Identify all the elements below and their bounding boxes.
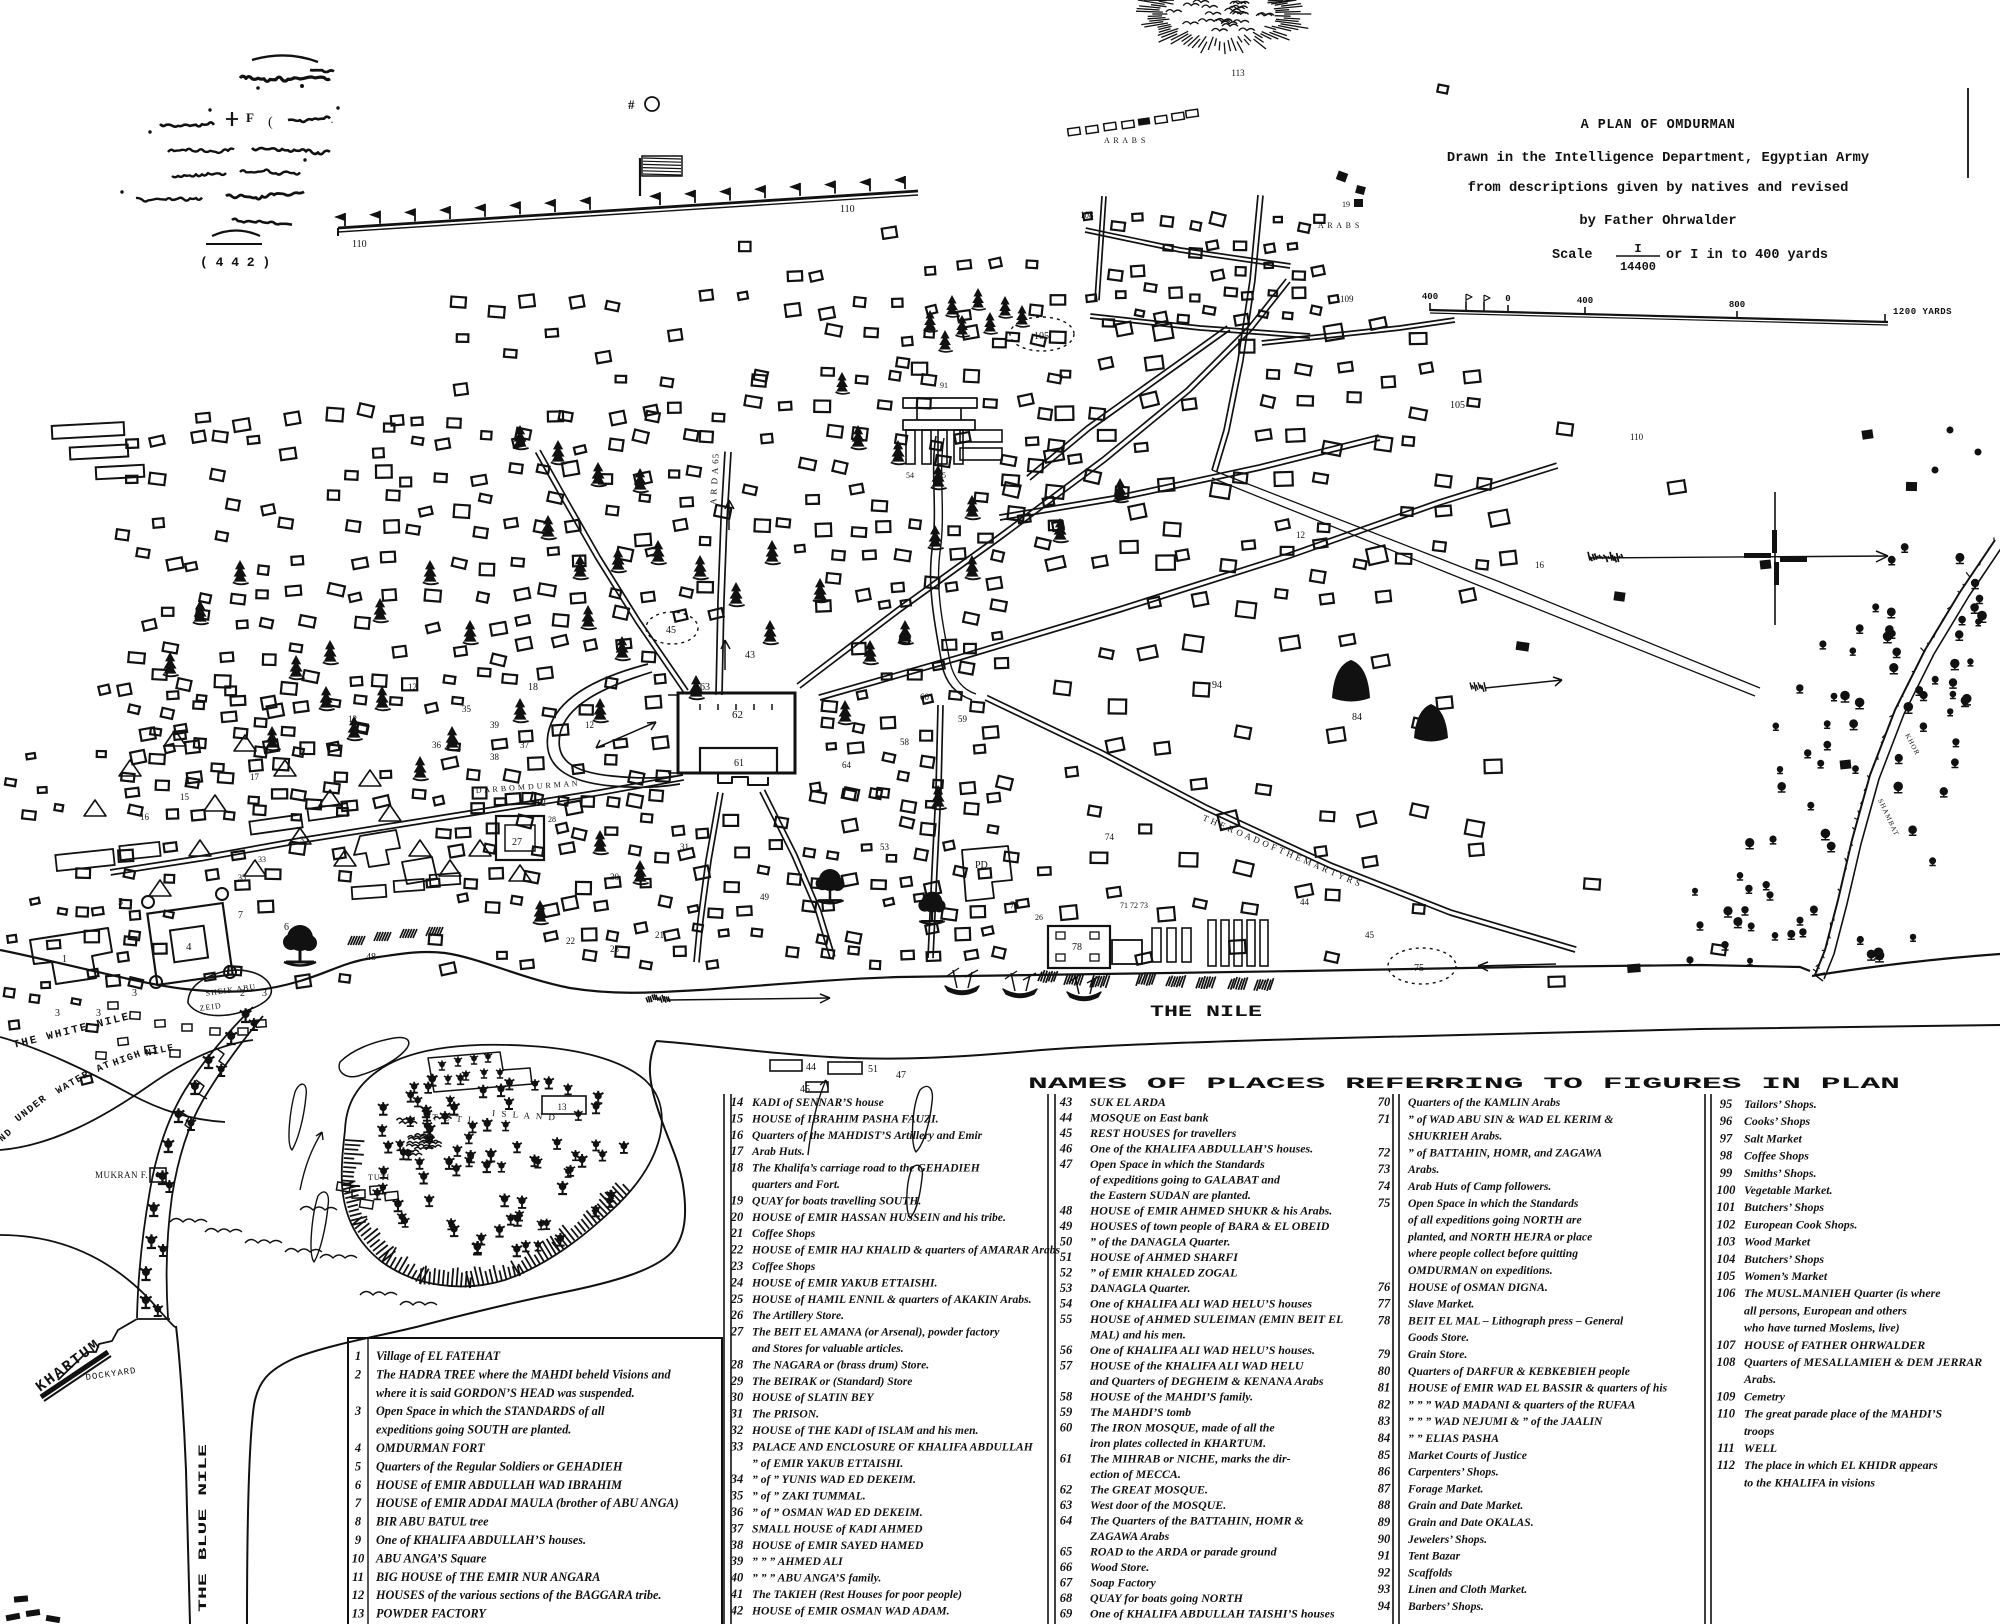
svg-text:quarters and Fort.: quarters and Fort. <box>752 1178 840 1191</box>
svg-text:5: 5 <box>118 897 123 908</box>
svg-text:troops: troops <box>1744 1424 1775 1438</box>
svg-text:45: 45 <box>800 1084 810 1095</box>
svg-text:Coffee Shops: Coffee Shops <box>1744 1149 1809 1163</box>
svg-text:Linen and Cloth Market.: Linen and Cloth Market. <box>1407 1583 1527 1596</box>
svg-text:78: 78 <box>1378 1313 1391 1327</box>
svg-text:19: 19 <box>1342 200 1350 209</box>
svg-text:113: 113 <box>1231 68 1245 78</box>
svg-text:ABU ANGA’S Square: ABU ANGA’S Square <box>375 1551 487 1565</box>
svg-text:37: 37 <box>730 1521 744 1535</box>
svg-text:Slave Market.: Slave Market. <box>1408 1298 1474 1311</box>
svg-text:REST HOUSES for travellers: REST HOUSES for travellers <box>1089 1126 1237 1140</box>
svg-text:to the KHALIFA in visions: to the KHALIFA in visions <box>1744 1475 1875 1489</box>
svg-text:6: 6 <box>284 922 289 933</box>
svg-text:16: 16 <box>1535 560 1545 570</box>
svg-text:51: 51 <box>868 1064 878 1075</box>
svg-text:21: 21 <box>730 1226 744 1240</box>
svg-text:” ” ” WAD MADANI & quart: ” ” ” WAD MADANI & quarters of the RUFAA <box>1408 1398 1636 1411</box>
svg-text:Wood Store.: Wood Store. <box>1090 1560 1149 1574</box>
svg-text:48: 48 <box>1059 1204 1073 1218</box>
svg-text:all persons, European and othe: all persons, European and others <box>1744 1303 1907 1317</box>
svg-text:Arab Huts.: Arab Huts. <box>751 1145 805 1158</box>
svg-text:by Father Ohrwalder: by Father Ohrwalder <box>1579 213 1736 229</box>
svg-text:35: 35 <box>238 873 246 882</box>
svg-text:26: 26 <box>730 1308 744 1322</box>
svg-text:43: 43 <box>1059 1095 1073 1109</box>
svg-text:expeditions going SOUTH are pl: expeditions going SOUTH are planted. <box>376 1423 571 1437</box>
svg-text:65: 65 <box>1060 1545 1073 1559</box>
svg-text:60: 60 <box>1060 1421 1073 1435</box>
svg-text:70: 70 <box>1378 1095 1391 1109</box>
svg-text:Open Space in which the STANDA: Open Space in which the STANDARDS of all <box>376 1404 605 1418</box>
svg-text:7: 7 <box>355 1496 362 1510</box>
svg-text:HOUSE of EMIR AHMED SHUKR & hi: HOUSE of EMIR AHMED SHUKR & his Arabs. <box>1089 1204 1332 1218</box>
svg-text:the Eastern SUDAN are planted.: the Eastern SUDAN are planted. <box>1090 1188 1251 1202</box>
svg-text:12: 12 <box>408 682 417 692</box>
svg-text:50: 50 <box>1060 1235 1073 1249</box>
svg-text:3: 3 <box>132 988 137 999</box>
svg-text:MAL) and his men.: MAL) and his men. <box>1089 1328 1186 1342</box>
svg-text:·: · <box>330 115 334 129</box>
svg-text:63: 63 <box>700 682 710 693</box>
svg-text:” of EMIR YAKUB ETTAISHI.: ” of EMIR YAKUB ETTAISHI. <box>752 1457 903 1470</box>
svg-text:5: 5 <box>355 1459 361 1473</box>
svg-text:Grain and Date OKALAS.: Grain and Date OKALAS. <box>1408 1516 1534 1529</box>
svg-text:108: 108 <box>1717 1355 1737 1369</box>
svg-text:” of BATTAHIN, HOMR, and Z: ” of BATTAHIN, HOMR, and ZAGAWA <box>1408 1146 1603 1159</box>
svg-text:89: 89 <box>1378 1515 1391 1529</box>
svg-text:57: 57 <box>1060 1359 1073 1373</box>
svg-text:10: 10 <box>352 1551 365 1565</box>
svg-text:One of KHALIFA ABDULLAH’S hous: One of KHALIFA ABDULLAH’S houses. <box>376 1533 586 1547</box>
svg-text:35: 35 <box>730 1489 744 1503</box>
svg-text:53: 53 <box>1060 1281 1073 1295</box>
svg-text:Village of EL FATEHAT: Village of EL FATEHAT <box>376 1349 501 1363</box>
svg-text:or I in to 400 yards: or I in to 400 yards <box>1666 248 1828 263</box>
svg-text:39: 39 <box>490 720 500 730</box>
svg-text:” ” ” WAD NEJUMI & ” o: ” ” ” WAD NEJUMI & ” of the JAALIN <box>1408 1415 1603 1428</box>
svg-text:The IRON MOSQUE, made of all t: The IRON MOSQUE, made of all the <box>1090 1421 1275 1435</box>
svg-text:50: 50 <box>820 872 830 882</box>
svg-text:Cemetry: Cemetry <box>1744 1389 1786 1403</box>
svg-text:Arab Huts of Camp followers.: Arab Huts of Camp followers. <box>1407 1180 1551 1193</box>
svg-text:Open Space in which the Standa: Open Space in which the Standards <box>1090 1157 1265 1171</box>
svg-text:37: 37 <box>520 740 530 750</box>
svg-text:32: 32 <box>730 1423 744 1437</box>
svg-text:PD: PD <box>975 860 988 871</box>
svg-text:112: 112 <box>1717 1458 1735 1472</box>
svg-text:44: 44 <box>806 1062 816 1073</box>
svg-text:98: 98 <box>1720 1149 1733 1163</box>
svg-text:46: 46 <box>1059 1142 1073 1156</box>
svg-text:The MIHRAB or NICHE, marks the: The MIHRAB or NICHE, marks the dir- <box>1090 1452 1291 1466</box>
svg-text:60: 60 <box>920 692 930 702</box>
svg-text:BEIT EL MAL – Lithograph press: BEIT EL MAL – Lithograph press – General <box>1407 1314 1624 1327</box>
svg-text:Quarters of DARFUR & KEBKEBIEH: Quarters of DARFUR & KEBKEBIEH people <box>1408 1365 1630 1378</box>
svg-text:Scaffolds: Scaffolds <box>1408 1566 1453 1579</box>
svg-text:DANAGLA Quarter.: DANAGLA Quarter. <box>1089 1281 1190 1295</box>
svg-text:Arabs.: Arabs. <box>1743 1372 1776 1386</box>
svg-text:West door of the MOSQUE.: West door of the MOSQUE. <box>1090 1498 1226 1512</box>
svg-text:72: 72 <box>1378 1145 1391 1159</box>
svg-text:SHUKRIEH Arabs.: SHUKRIEH Arabs. <box>1408 1130 1502 1143</box>
svg-text:43: 43 <box>745 650 755 661</box>
svg-text:84: 84 <box>1378 1431 1391 1445</box>
svg-text:Tailors’ Shops.: Tailors’ Shops. <box>1744 1097 1817 1111</box>
svg-text:15: 15 <box>731 1111 744 1125</box>
svg-text:12: 12 <box>348 714 357 724</box>
svg-text:0: 0 <box>1505 294 1510 304</box>
svg-text:76: 76 <box>1010 900 1020 910</box>
svg-text:110: 110 <box>1630 432 1644 442</box>
svg-text:41: 41 <box>730 1587 744 1601</box>
svg-text:Open Space in which the Standa: Open Space in which the Standards <box>1408 1197 1579 1210</box>
svg-text:The Quarters of the BATTAHIN,: The Quarters of the BATTAHIN, HOMR & <box>1090 1514 1304 1528</box>
svg-text:30: 30 <box>610 872 620 882</box>
svg-text:Quarters of the KAMLIN Arabs: Quarters of the KAMLIN Arabs <box>1408 1096 1561 1109</box>
svg-text:96: 96 <box>1720 1114 1733 1128</box>
svg-text:52: 52 <box>1060 1266 1073 1280</box>
svg-text:90: 90 <box>1378 1532 1391 1546</box>
svg-text:HOUSE of SLATIN BEY: HOUSE of SLATIN BEY <box>751 1391 874 1404</box>
svg-text:84: 84 <box>1352 712 1362 723</box>
svg-text:14: 14 <box>731 1095 744 1109</box>
svg-text:where people collect before qu: where people collect before quitting <box>1408 1247 1578 1260</box>
svg-text:45: 45 <box>666 625 676 636</box>
svg-text:94: 94 <box>1378 1599 1391 1613</box>
svg-text:27: 27 <box>512 837 522 848</box>
svg-text:49: 49 <box>1059 1219 1073 1233</box>
svg-text:Smiths’ Shops.: Smiths’ Shops. <box>1744 1166 1817 1180</box>
svg-text:KADI of SENNAR’S house: KADI of SENNAR’S house <box>751 1096 884 1109</box>
svg-text:A PLAN OF OMDURMAN: A PLAN OF OMDURMAN <box>1581 118 1736 133</box>
svg-text:where it is said GORDON’S HEAD: where it is said GORDON’S HEAD was suspe… <box>376 1386 635 1400</box>
svg-text:105: 105 <box>1034 331 1049 342</box>
svg-text:33: 33 <box>730 1439 744 1453</box>
svg-text:12: 12 <box>352 1588 365 1602</box>
svg-text:111: 111 <box>1717 1441 1734 1455</box>
svg-text:” of EMIR KHALED ZOGAL: ” of EMIR KHALED ZOGAL <box>1090 1266 1237 1280</box>
svg-text:The BEIT EL AMANA (or Arsenal): The BEIT EL AMANA (or Arsenal), powder f… <box>752 1326 1000 1339</box>
svg-text:77: 77 <box>1378 1297 1391 1311</box>
svg-text:61: 61 <box>1060 1452 1073 1466</box>
svg-text:” ” ” AHMED ALI: ” ” ” AHMED ALI <box>752 1555 843 1568</box>
svg-text:79: 79 <box>1378 1347 1391 1361</box>
svg-text:Grain Store.: Grain Store. <box>1408 1348 1467 1361</box>
svg-text:102: 102 <box>1717 1217 1736 1231</box>
svg-text:and Quarters of DEGHEIM & KENA: and Quarters of DEGHEIM & KENANA Arabs <box>1090 1374 1324 1388</box>
svg-text:Quarters of MESALLAMIEH & DEM: Quarters of MESALLAMIEH & DEM JERRAR <box>1744 1355 1982 1369</box>
svg-text:108: 108 <box>1080 210 1094 220</box>
svg-text:The Khalifa’s carriage road to: The Khalifa’s carriage road to the GEHAD… <box>752 1162 981 1175</box>
svg-text:HOUSE of EMIR YAKUB ETTAISHI.: HOUSE of EMIR YAKUB ETTAISHI. <box>751 1276 937 1289</box>
svg-text:18: 18 <box>731 1161 744 1175</box>
svg-text:400: 400 <box>1422 292 1438 302</box>
svg-text:Forage Market.: Forage Market. <box>1407 1482 1483 1495</box>
svg-text:34: 34 <box>730 1472 744 1486</box>
svg-text:Wood Market: Wood Market <box>1744 1235 1811 1249</box>
svg-text:73: 73 <box>1378 1162 1391 1176</box>
svg-text:Quarters of the Regular Soldie: Quarters of the Regular Soldiers or GEHA… <box>376 1459 623 1473</box>
svg-text:1: 1 <box>355 1349 361 1363</box>
svg-text:OMDURMAN on expeditions.: OMDURMAN on expeditions. <box>1408 1264 1553 1277</box>
svg-text:91: 91 <box>940 381 948 390</box>
svg-text:59: 59 <box>958 714 968 724</box>
svg-text:3: 3 <box>354 1404 361 1418</box>
svg-text:3: 3 <box>262 988 267 999</box>
svg-text:of all expeditions going NORTH: of all expeditions going NORTH are <box>1408 1214 1582 1227</box>
svg-text:105: 105 <box>1450 400 1465 411</box>
svg-text:4: 4 <box>354 1441 361 1455</box>
svg-text:A R A B S: A R A B S <box>1104 136 1146 145</box>
svg-text:23: 23 <box>730 1259 744 1273</box>
svg-text:93: 93 <box>1378 1582 1391 1596</box>
svg-text:82: 82 <box>1378 1397 1391 1411</box>
svg-text:HOUSE of THE KADI of ISLAM and: HOUSE of THE KADI of ISLAM and his men. <box>751 1424 978 1437</box>
svg-text:54: 54 <box>906 471 914 480</box>
svg-text:HOUSE of AHMED SHARFI: HOUSE of AHMED SHARFI <box>1089 1250 1238 1264</box>
svg-text:and Stores for valuable articl: and Stores for valuable articles. <box>752 1342 904 1355</box>
svg-text:OMDURMAN FORT: OMDURMAN FORT <box>376 1441 485 1455</box>
svg-text:64: 64 <box>1060 1514 1073 1528</box>
svg-text:28: 28 <box>548 815 556 824</box>
svg-text:62: 62 <box>1060 1483 1073 1497</box>
svg-text:Vegetable Market.: Vegetable Market. <box>1744 1183 1833 1197</box>
svg-text:11: 11 <box>352 1570 364 1584</box>
svg-text:48: 48 <box>366 952 376 963</box>
svg-text:17: 17 <box>731 1144 744 1158</box>
svg-text:54: 54 <box>1060 1297 1073 1311</box>
svg-text:17: 17 <box>250 772 260 782</box>
svg-text:BIR ABU BATUL tree: BIR ABU BATUL tree <box>375 1515 489 1529</box>
svg-text:Butchers’ Shops: Butchers’ Shops <box>1743 1252 1824 1266</box>
svg-text:55: 55 <box>1060 1312 1073 1326</box>
svg-text:QUAY for boats going NORTH: QUAY for boats going NORTH <box>1090 1591 1244 1605</box>
svg-text:58: 58 <box>900 737 910 747</box>
svg-text:13: 13 <box>352 1607 365 1621</box>
svg-text:7: 7 <box>238 910 243 921</box>
svg-text:71 72 73: 71 72 73 <box>1120 901 1148 910</box>
svg-text:78: 78 <box>1072 942 1082 953</box>
svg-text:12: 12 <box>585 720 594 730</box>
svg-text:2: 2 <box>240 988 245 999</box>
svg-text:HOUSE of the MAHDI’S family.: HOUSE of the MAHDI’S family. <box>1089 1390 1253 1404</box>
svg-text:One of KHALIFA ABDULLAH TAISHI: One of KHALIFA ABDULLAH TAISHI’S houses <box>1090 1607 1335 1621</box>
svg-text:103: 103 <box>1717 1235 1736 1249</box>
svg-text:SUK EL ARDA: SUK EL ARDA <box>1090 1095 1166 1109</box>
svg-text:107: 107 <box>1717 1338 1737 1352</box>
svg-text:” ” ” ABU ANGA’: ” ” ” ABU ANGA’S family. <box>752 1572 881 1585</box>
svg-text:12: 12 <box>1296 530 1305 540</box>
svg-text:36: 36 <box>730 1505 744 1519</box>
svg-text:13: 13 <box>558 1102 568 1112</box>
svg-text:38: 38 <box>490 752 500 762</box>
svg-text:400: 400 <box>1577 296 1593 306</box>
svg-text:91: 91 <box>1378 1549 1391 1563</box>
svg-text:74: 74 <box>1105 832 1115 842</box>
svg-text:The Artillery Store.: The Artillery Store. <box>752 1309 844 1322</box>
svg-text:75: 75 <box>1378 1196 1391 1210</box>
svg-text:95: 95 <box>1720 1097 1733 1111</box>
svg-text:105: 105 <box>1717 1269 1736 1283</box>
svg-text:SMALL HOUSE of KADI AHMED: SMALL HOUSE of KADI AHMED <box>752 1522 923 1535</box>
svg-text:(: ( <box>268 115 273 130</box>
svg-text:MUKRAN F.: MUKRAN F. <box>95 1170 148 1180</box>
svg-text:80: 80 <box>1378 1364 1391 1378</box>
svg-text:69: 69 <box>1060 1607 1073 1621</box>
svg-text:” ” ELIAS PASHA: ” ” ELIAS PASHA <box>1408 1432 1499 1445</box>
svg-text:Coffee Shops: Coffee Shops <box>752 1260 816 1273</box>
svg-text:” of ” OSMAN WAD ED DEKEIM.: ” of ” OSMAN WAD ED DEKEIM. <box>752 1506 923 1519</box>
svg-text:97: 97 <box>1720 1131 1733 1145</box>
svg-text:TUTI: TUTI <box>368 1173 390 1182</box>
svg-text:Grain and Date Market.: Grain and Date Market. <box>1408 1499 1523 1512</box>
svg-text:HOUSE of FATHER OHRWALDER: HOUSE of FATHER OHRWALDER <box>1743 1338 1925 1352</box>
svg-text:The GREAT MOSQUE.: The GREAT MOSQUE. <box>1090 1483 1208 1497</box>
svg-text:Scale: Scale <box>1552 248 1593 263</box>
svg-text:HOUSE of AHMED SULEIMAN (EMIN: HOUSE of AHMED SULEIMAN (EMIN BEIT EL <box>1089 1312 1343 1326</box>
svg-text:67: 67 <box>1060 1576 1073 1590</box>
svg-text:One of KHALIFA ALI WAD HELU’S: One of KHALIFA ALI WAD HELU’S houses <box>1090 1297 1312 1311</box>
svg-text:1200 YARDS: 1200 YARDS <box>1893 307 1952 317</box>
svg-text:20: 20 <box>730 1210 744 1224</box>
svg-text:iron plates collected in KHART: iron plates collected in KHARTUM. <box>1090 1436 1266 1450</box>
svg-text:18: 18 <box>528 682 538 693</box>
svg-text:15: 15 <box>180 792 190 802</box>
svg-text:The BEIRAK or (Standard) Store: The BEIRAK or (Standard) Store <box>752 1375 912 1388</box>
svg-text:66: 66 <box>1060 1560 1073 1574</box>
svg-text:16: 16 <box>140 812 150 822</box>
svg-text:24: 24 <box>730 1275 744 1289</box>
svg-text:21: 21 <box>655 930 664 940</box>
svg-text:The place in which EL KHIDR ap: The place in which EL KHIDR appears <box>1744 1458 1938 1472</box>
svg-text:85: 85 <box>1378 1448 1391 1462</box>
svg-text:31: 31 <box>680 842 689 852</box>
svg-text:40: 40 <box>730 1571 744 1585</box>
svg-text:HOUSES of town people of BARA: HOUSES of town people of BARA & EL OBEID <box>1089 1219 1330 1233</box>
svg-text:109: 109 <box>1340 294 1354 304</box>
svg-text:14400: 14400 <box>1620 260 1656 274</box>
svg-text:74: 74 <box>1378 1179 1391 1193</box>
svg-text:1: 1 <box>62 954 67 965</box>
svg-text:HOUSE of EMIR SAYED HAMED: HOUSE of EMIR SAYED HAMED <box>751 1539 924 1552</box>
svg-text:64: 64 <box>842 760 852 770</box>
svg-text:HOUSE of EMIR HASSAN HUSSEIN a: HOUSE of EMIR HASSAN HUSSEIN and his tri… <box>751 1211 1006 1224</box>
svg-text:planted, and NORTH HEJRA or pl: planted, and NORTH HEJRA or place <box>1407 1230 1592 1243</box>
svg-text:Coffee Shops: Coffee Shops <box>752 1227 816 1240</box>
svg-text:WELL: WELL <box>1744 1441 1777 1455</box>
svg-text:19: 19 <box>731 1193 744 1207</box>
svg-text:44: 44 <box>1059 1111 1073 1125</box>
svg-text:Cooks’ Shops: Cooks’ Shops <box>1744 1114 1811 1128</box>
svg-text:61: 61 <box>734 758 744 769</box>
svg-text:BIG HOUSE of THE EMIR NUR ANGA: BIG HOUSE of THE EMIR NUR ANGARA <box>375 1570 600 1584</box>
svg-text:HOUSE of the KHALIFA ALI WAD H: HOUSE of the KHALIFA ALI WAD HELU <box>1089 1359 1305 1373</box>
svg-text:38: 38 <box>730 1538 744 1552</box>
svg-text:4: 4 <box>186 941 192 953</box>
svg-text:63: 63 <box>1060 1498 1073 1512</box>
svg-text:HOUSE of EMIR ABDULLAH WAD IBR: HOUSE of EMIR ABDULLAH WAD IBRAHIM <box>375 1478 623 1492</box>
svg-text:I: I <box>1634 242 1641 256</box>
svg-text:( 4 4 2 ): ( 4 4 2 ) <box>200 255 270 270</box>
svg-text:” of ” YUNIS WAD ED DEKEIM.: ” of ” YUNIS WAD ED DEKEIM. <box>752 1473 916 1486</box>
svg-text:81: 81 <box>1378 1381 1391 1395</box>
svg-text:35: 35 <box>300 835 308 844</box>
svg-text:Salt Market: Salt Market <box>1744 1131 1803 1145</box>
svg-text:62: 62 <box>732 709 743 721</box>
svg-text:HOUSES of the various sections: HOUSES of the various sections of the BA… <box>375 1588 661 1602</box>
svg-text:23: 23 <box>610 944 620 954</box>
svg-text:HOUSE of EMIR OSMAN WAD ADAM.: HOUSE of EMIR OSMAN WAD ADAM. <box>751 1604 950 1617</box>
svg-text:Market Courts of Justice: Market Courts of Justice <box>1407 1449 1527 1462</box>
svg-text:The NAGARA or (brass drum) Sto: The NAGARA or (brass drum) Store. <box>752 1358 929 1371</box>
svg-text:of expeditions going to GALABA: of expeditions going to GALABAT and <box>1090 1173 1281 1187</box>
svg-text:71: 71 <box>1378 1112 1391 1126</box>
svg-text:33: 33 <box>258 855 266 864</box>
svg-text:16: 16 <box>731 1128 744 1142</box>
svg-text:56: 56 <box>1060 1343 1073 1357</box>
svg-text:87: 87 <box>1378 1481 1391 1495</box>
svg-text:44: 44 <box>1300 897 1310 907</box>
svg-text:Drawn in the Intelligence Depa: Drawn in the Intelligence Department, Eg… <box>1447 150 1870 166</box>
svg-text:101: 101 <box>1717 1200 1736 1214</box>
svg-text:Tent Bazar: Tent Bazar <box>1408 1550 1461 1563</box>
svg-text:3: 3 <box>55 1008 60 1019</box>
svg-text:106: 106 <box>1717 1286 1737 1300</box>
svg-text:47: 47 <box>896 1070 906 1081</box>
svg-text:59: 59 <box>1060 1405 1073 1419</box>
svg-text:76: 76 <box>1378 1280 1391 1294</box>
svg-text:HOUSE of EMIR WAD EL BASSIR &: HOUSE of EMIR WAD EL BASSIR & quarters o… <box>1407 1382 1668 1395</box>
svg-text:Goods Store.: Goods Store. <box>1408 1331 1469 1344</box>
svg-text:Butchers’ Shops: Butchers’ Shops <box>1743 1200 1824 1214</box>
svg-text:68: 68 <box>1060 1591 1073 1605</box>
svg-text:The PRISON.: The PRISON. <box>752 1408 819 1421</box>
svg-text:36: 36 <box>432 740 442 750</box>
svg-text:HOUSE of OSMAN DIGNA.: HOUSE of OSMAN DIGNA. <box>1407 1281 1548 1294</box>
svg-text:110: 110 <box>840 204 855 215</box>
svg-text:Soap Factory: Soap Factory <box>1090 1576 1156 1590</box>
svg-text:35: 35 <box>462 704 472 714</box>
svg-text:22: 22 <box>566 936 575 946</box>
svg-text:The MUSL.MANIEH Quarter (is wh: The MUSL.MANIEH Quarter (is where <box>1744 1286 1941 1300</box>
svg-text:58: 58 <box>1060 1390 1073 1404</box>
svg-text:NAMES OF PLACES REFERRING TO F: NAMES OF PLACES REFERRING TO FIGURES IN … <box>1028 1075 1900 1093</box>
svg-text:8: 8 <box>355 1515 362 1529</box>
svg-text:39: 39 <box>730 1554 744 1568</box>
svg-text:51: 51 <box>1060 1250 1073 1264</box>
svg-text:9: 9 <box>355 1533 362 1547</box>
svg-text:104: 104 <box>1717 1252 1736 1266</box>
svg-text:Quarters of the MAHDIST’S Arti: Quarters of the MAHDIST’S Artillery and … <box>752 1129 983 1142</box>
svg-text:100: 100 <box>1717 1183 1737 1197</box>
svg-text:6: 6 <box>355 1478 362 1492</box>
svg-text:31: 31 <box>730 1407 744 1421</box>
svg-text:The MAHDI’S tomb: The MAHDI’S tomb <box>1090 1405 1191 1419</box>
svg-text:800: 800 <box>1729 300 1745 310</box>
svg-text:45: 45 <box>1059 1126 1073 1140</box>
svg-text:55: 55 <box>938 471 946 480</box>
svg-text:28: 28 <box>730 1357 744 1371</box>
svg-text:25: 25 <box>730 1292 744 1306</box>
svg-text:49: 49 <box>760 892 770 902</box>
svg-text:88: 88 <box>1378 1498 1391 1512</box>
svg-text:29: 29 <box>730 1374 744 1388</box>
svg-text:HOUSE of EMIR HAJ KHALID & qua: HOUSE of EMIR HAJ KHALID & quarters of A… <box>751 1244 1061 1257</box>
svg-text:THE BLUE NILE: THE BLUE NILE <box>198 1443 210 1612</box>
svg-text:ZAGAWA Arabs: ZAGAWA Arabs <box>1089 1529 1170 1543</box>
svg-text:PALACE AND ENCLOSURE OF KHALIF: PALACE AND ENCLOSURE OF KHALIFA ABDULLAH <box>752 1440 1034 1453</box>
